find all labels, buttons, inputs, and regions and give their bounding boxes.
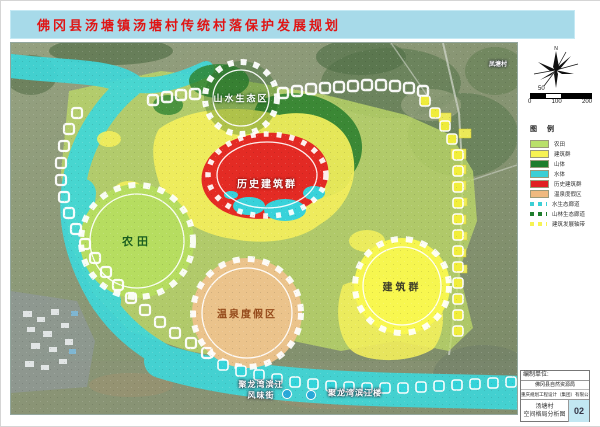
legend-swatch-historic (530, 180, 549, 188)
scale-seg-1 (531, 94, 546, 98)
plate-title-line1: 汤塘村 (535, 403, 553, 411)
zone-label-farmland: 农田 (122, 233, 152, 249)
scale-tick-100: 100 (552, 99, 562, 105)
legend-item: 山体 (530, 160, 592, 167)
legend-label: 农田 (554, 140, 565, 148)
north-label: N (554, 46, 558, 52)
scale-ticks: 0 100 200 (528, 99, 592, 105)
legend-label: 建筑发展轴带 (552, 220, 585, 228)
legend-item: 历史建筑群 (530, 180, 592, 187)
plate-title-line2: 空间格局分析图 (523, 411, 565, 419)
place-label-left: 聚龙湾滨江 风味街 (239, 380, 284, 402)
legend-label: 历史建筑群 (554, 180, 582, 188)
scale-bar: 50 0 100 200 (518, 86, 593, 108)
title-block: 编制单位: 佛冈县自然资源局 重庆规划工程设计（集团）有限公司 汤塘村 空间格局… (520, 370, 590, 422)
legend-label: 山体 (554, 160, 565, 168)
legend-swatch-water-corridor (530, 202, 547, 206)
legend-swatch-mountain (530, 160, 549, 168)
page-title: 佛冈县汤塘镇汤塘村传统村落保护发展规划 (11, 15, 341, 34)
legend-swatch-forest-corridor (530, 212, 547, 216)
plate-title: 汤塘村 空间格局分析图 (521, 400, 569, 422)
legend-title: 图 例 (530, 124, 592, 134)
planning-map: 山水生态区 历史建筑群 农田 温泉度假区 建筑群 聚龙湾滨江 风味街 聚龙湾滨江… (10, 42, 518, 415)
compiler-unit-1: 佛冈县自然资源局 (521, 381, 589, 390)
scale-label-50: 50 (538, 86, 545, 92)
legend-swatch-buildings (530, 150, 549, 158)
place-label-topright: 凤塘村 (489, 61, 507, 69)
place-label-left-line1: 聚龙湾滨江 (239, 380, 284, 391)
legend-swatch-building-axis (530, 222, 547, 226)
zone-label-historic: 历史建筑群 (237, 176, 297, 191)
legend-label: 温泉度假区 (554, 190, 582, 198)
zone-label-hotspring: 温泉度假区 (217, 306, 277, 321)
compiler-label: 编制单位: (521, 371, 589, 381)
zone-label-buildings: 建筑群 (383, 279, 422, 294)
legend-item: 建筑群 (530, 150, 592, 157)
legend-item: 山林生态廊道 (530, 210, 592, 217)
compass-rose: N (526, 44, 586, 90)
legend-swatch-water (530, 170, 549, 178)
legend-swatch-farmland (530, 140, 549, 148)
legend-swatch-hotspring (530, 190, 549, 198)
legend-item: 农田 (530, 140, 592, 147)
legend-item: 水体 (530, 170, 592, 177)
legend-item: 水生态廊道 (530, 200, 592, 207)
scale-seg-3 (561, 94, 591, 98)
plate-row: 汤塘村 空间格局分析图 02 (521, 400, 589, 422)
place-label-right: 聚龙湾滨江楼 (328, 389, 382, 400)
sheet-number: 02 (569, 400, 589, 422)
plan-sheet: 佛冈县汤塘镇汤塘村传统村落保护发展规划 (0, 0, 600, 427)
scale-tick-0: 0 (528, 99, 531, 105)
place-label-left-line2: 风味街 (239, 391, 284, 402)
legend: 图 例 农田 建筑群 山体 水体 历史建筑群 温泉度假区 水生态廊道 山林生态廊… (530, 124, 592, 230)
title-bar: 佛冈县汤塘镇汤塘村传统村落保护发展规划 (10, 10, 575, 39)
legend-label: 水体 (554, 170, 565, 178)
legend-label: 水生态廊道 (552, 200, 580, 208)
scale-seg-2 (546, 94, 561, 98)
map-sidebar: N 50 0 100 (518, 42, 593, 413)
legend-label: 山林生态廊道 (552, 210, 585, 218)
legend-item: 建筑发展轴带 (530, 220, 592, 227)
zone-label-eco: 山水生态区 (213, 92, 268, 105)
compiler-unit-2: 重庆规划工程设计（集团）有限公司 (521, 390, 589, 400)
legend-item: 温泉度假区 (530, 190, 592, 197)
legend-label: 建筑群 (554, 150, 571, 158)
scale-tick-200: 200 (582, 99, 592, 105)
